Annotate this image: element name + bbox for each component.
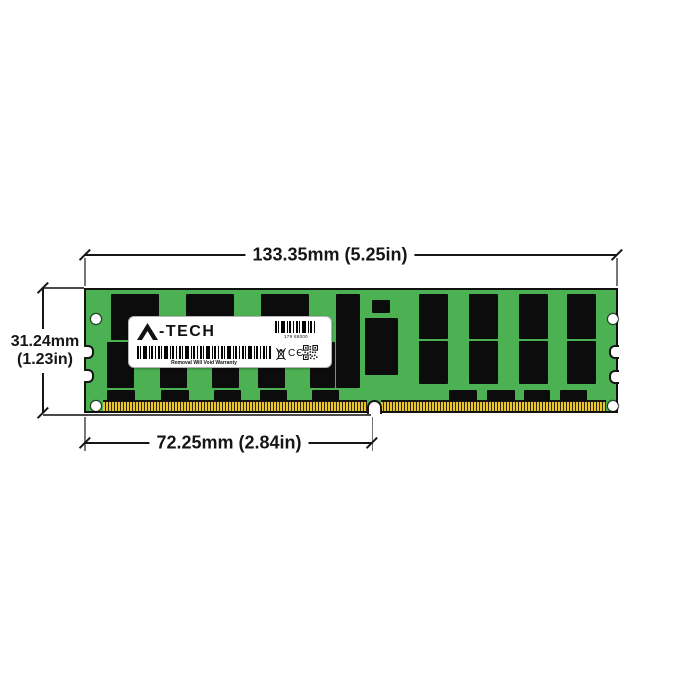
mounting-hole (91, 401, 101, 411)
dram-chip (567, 294, 596, 339)
dram-chip (519, 341, 548, 384)
qr-code-icon (303, 345, 318, 360)
a-tech-triangle-icon (137, 323, 158, 340)
mounting-hole (608, 401, 618, 411)
pin-row (381, 400, 606, 411)
ce-mark: CЄ (288, 348, 304, 359)
key-notch (367, 400, 382, 414)
extension-line (43, 414, 371, 416)
dram-chip (107, 390, 135, 401)
mounting-hole (91, 314, 101, 324)
diagram-stage: 133.35mm (5.25in) 31.24mm (1.23in) 72.25… (0, 0, 700, 700)
dram-chip (419, 341, 448, 384)
a-tech-logo: -TECH (137, 321, 215, 340)
dram-chip (519, 294, 548, 339)
left-dimension-in: (1.23in) (11, 351, 80, 369)
dram-chip (469, 341, 498, 384)
top-dimension-text: 133.35mm (5.25in) (245, 244, 414, 267)
dram-chip (469, 294, 498, 339)
dram-chip (260, 390, 287, 401)
extension-line (616, 258, 618, 286)
dram-chip (365, 318, 398, 375)
extension-line (43, 287, 84, 289)
dram-chip (419, 294, 448, 339)
pin-row (103, 400, 367, 411)
dram-chip (336, 294, 360, 388)
weee-bin-icon (276, 347, 286, 361)
bottom-dimension-text: 72.25mm (2.84in) (149, 432, 308, 455)
dram-chip (372, 300, 390, 313)
edge-notch (609, 345, 619, 359)
warranty-text: Removal Will Void Warranty (137, 361, 271, 366)
brand-text: -TECH (159, 324, 215, 340)
edge-notch (609, 370, 619, 384)
dram-chip (214, 390, 241, 401)
dram-chip (560, 390, 587, 401)
dram-chip (161, 390, 189, 401)
edge-notch (84, 369, 94, 383)
serial-number: 179 88000 (275, 334, 317, 339)
edge-notch (84, 345, 94, 359)
left-dimension-mm: 31.24mm (11, 333, 80, 351)
left-dimension-text: 31.24mm (1.23in) (9, 329, 82, 373)
product-label: -TECH 179 88000 Removal Will Void Warran… (128, 316, 332, 368)
memory-module: -TECH 179 88000 Removal Will Void Warran… (84, 288, 618, 413)
barcode-long-icon (137, 346, 271, 359)
dram-chip (487, 390, 515, 401)
dram-chip (567, 341, 596, 384)
extension-line (84, 417, 86, 451)
barcode-small-icon (275, 321, 317, 333)
dram-chip (449, 390, 477, 401)
extension-line (372, 417, 374, 451)
extension-line (84, 258, 86, 286)
dram-chip (524, 390, 550, 401)
dram-chip (312, 390, 339, 401)
mounting-hole (608, 314, 618, 324)
